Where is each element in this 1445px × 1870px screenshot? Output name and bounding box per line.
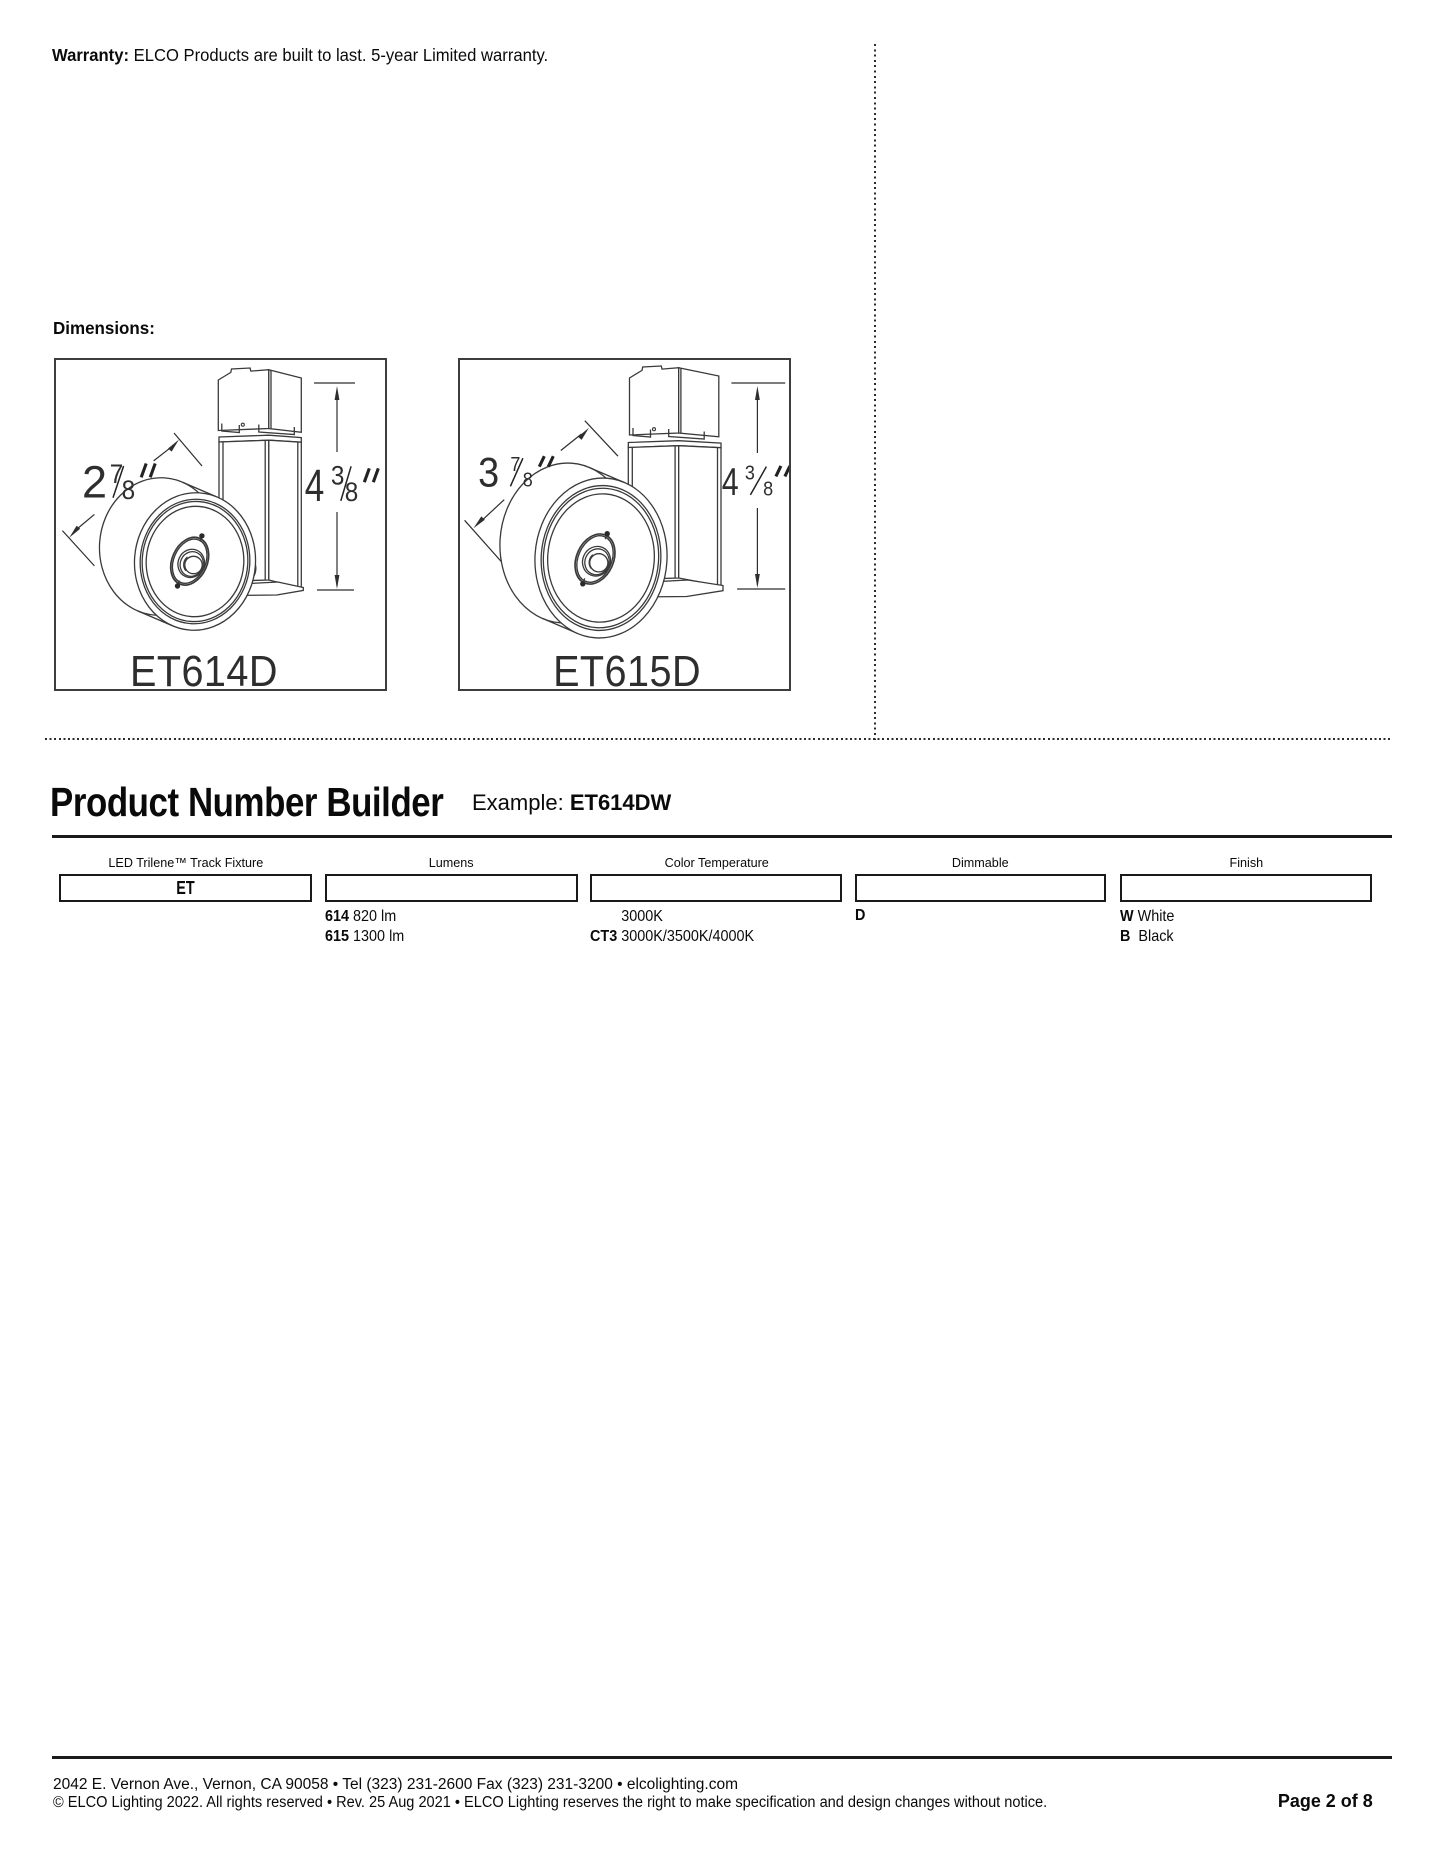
svg-text:3: 3 <box>745 463 755 485</box>
svg-text:4: 4 <box>305 460 325 511</box>
svg-text:4: 4 <box>722 460 739 503</box>
svg-text:3: 3 <box>478 450 499 496</box>
svg-text:3: 3 <box>331 461 345 490</box>
svg-text:8: 8 <box>345 478 359 507</box>
svg-text:ET614D: ET614D <box>130 646 278 689</box>
svg-text:8: 8 <box>763 478 773 500</box>
svg-text:8: 8 <box>122 476 136 505</box>
svg-text:8: 8 <box>523 469 533 491</box>
svg-text:ET615D: ET615D <box>553 646 701 689</box>
svg-text:2: 2 <box>82 457 107 508</box>
